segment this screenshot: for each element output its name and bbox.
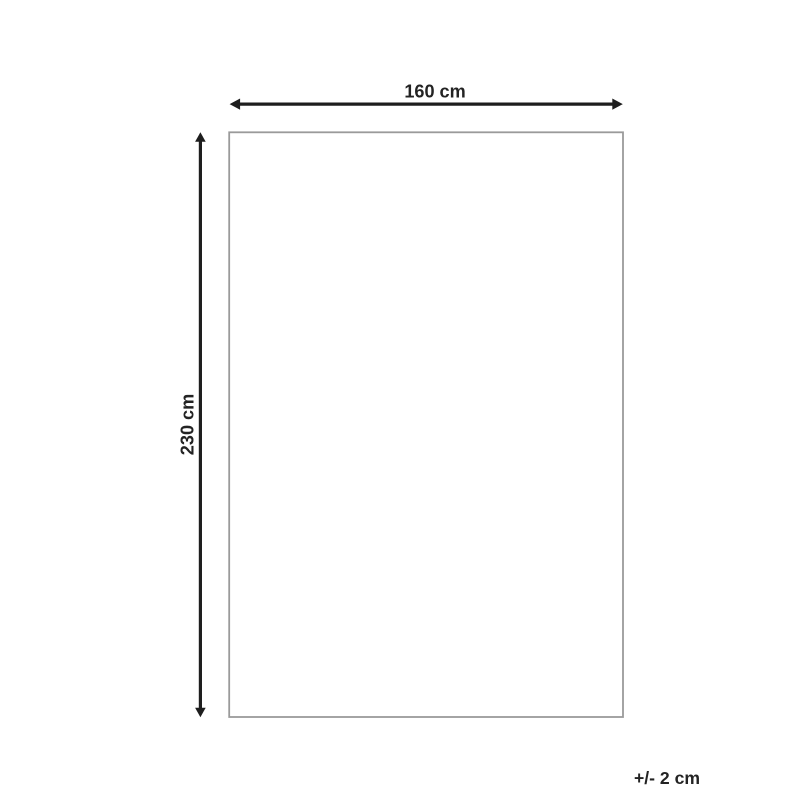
svg-text:160 cm: 160 cm (404, 82, 465, 102)
svg-text:+/- 2 cm: +/- 2 cm (634, 768, 700, 788)
svg-text:230 cm: 230 cm (177, 394, 197, 455)
